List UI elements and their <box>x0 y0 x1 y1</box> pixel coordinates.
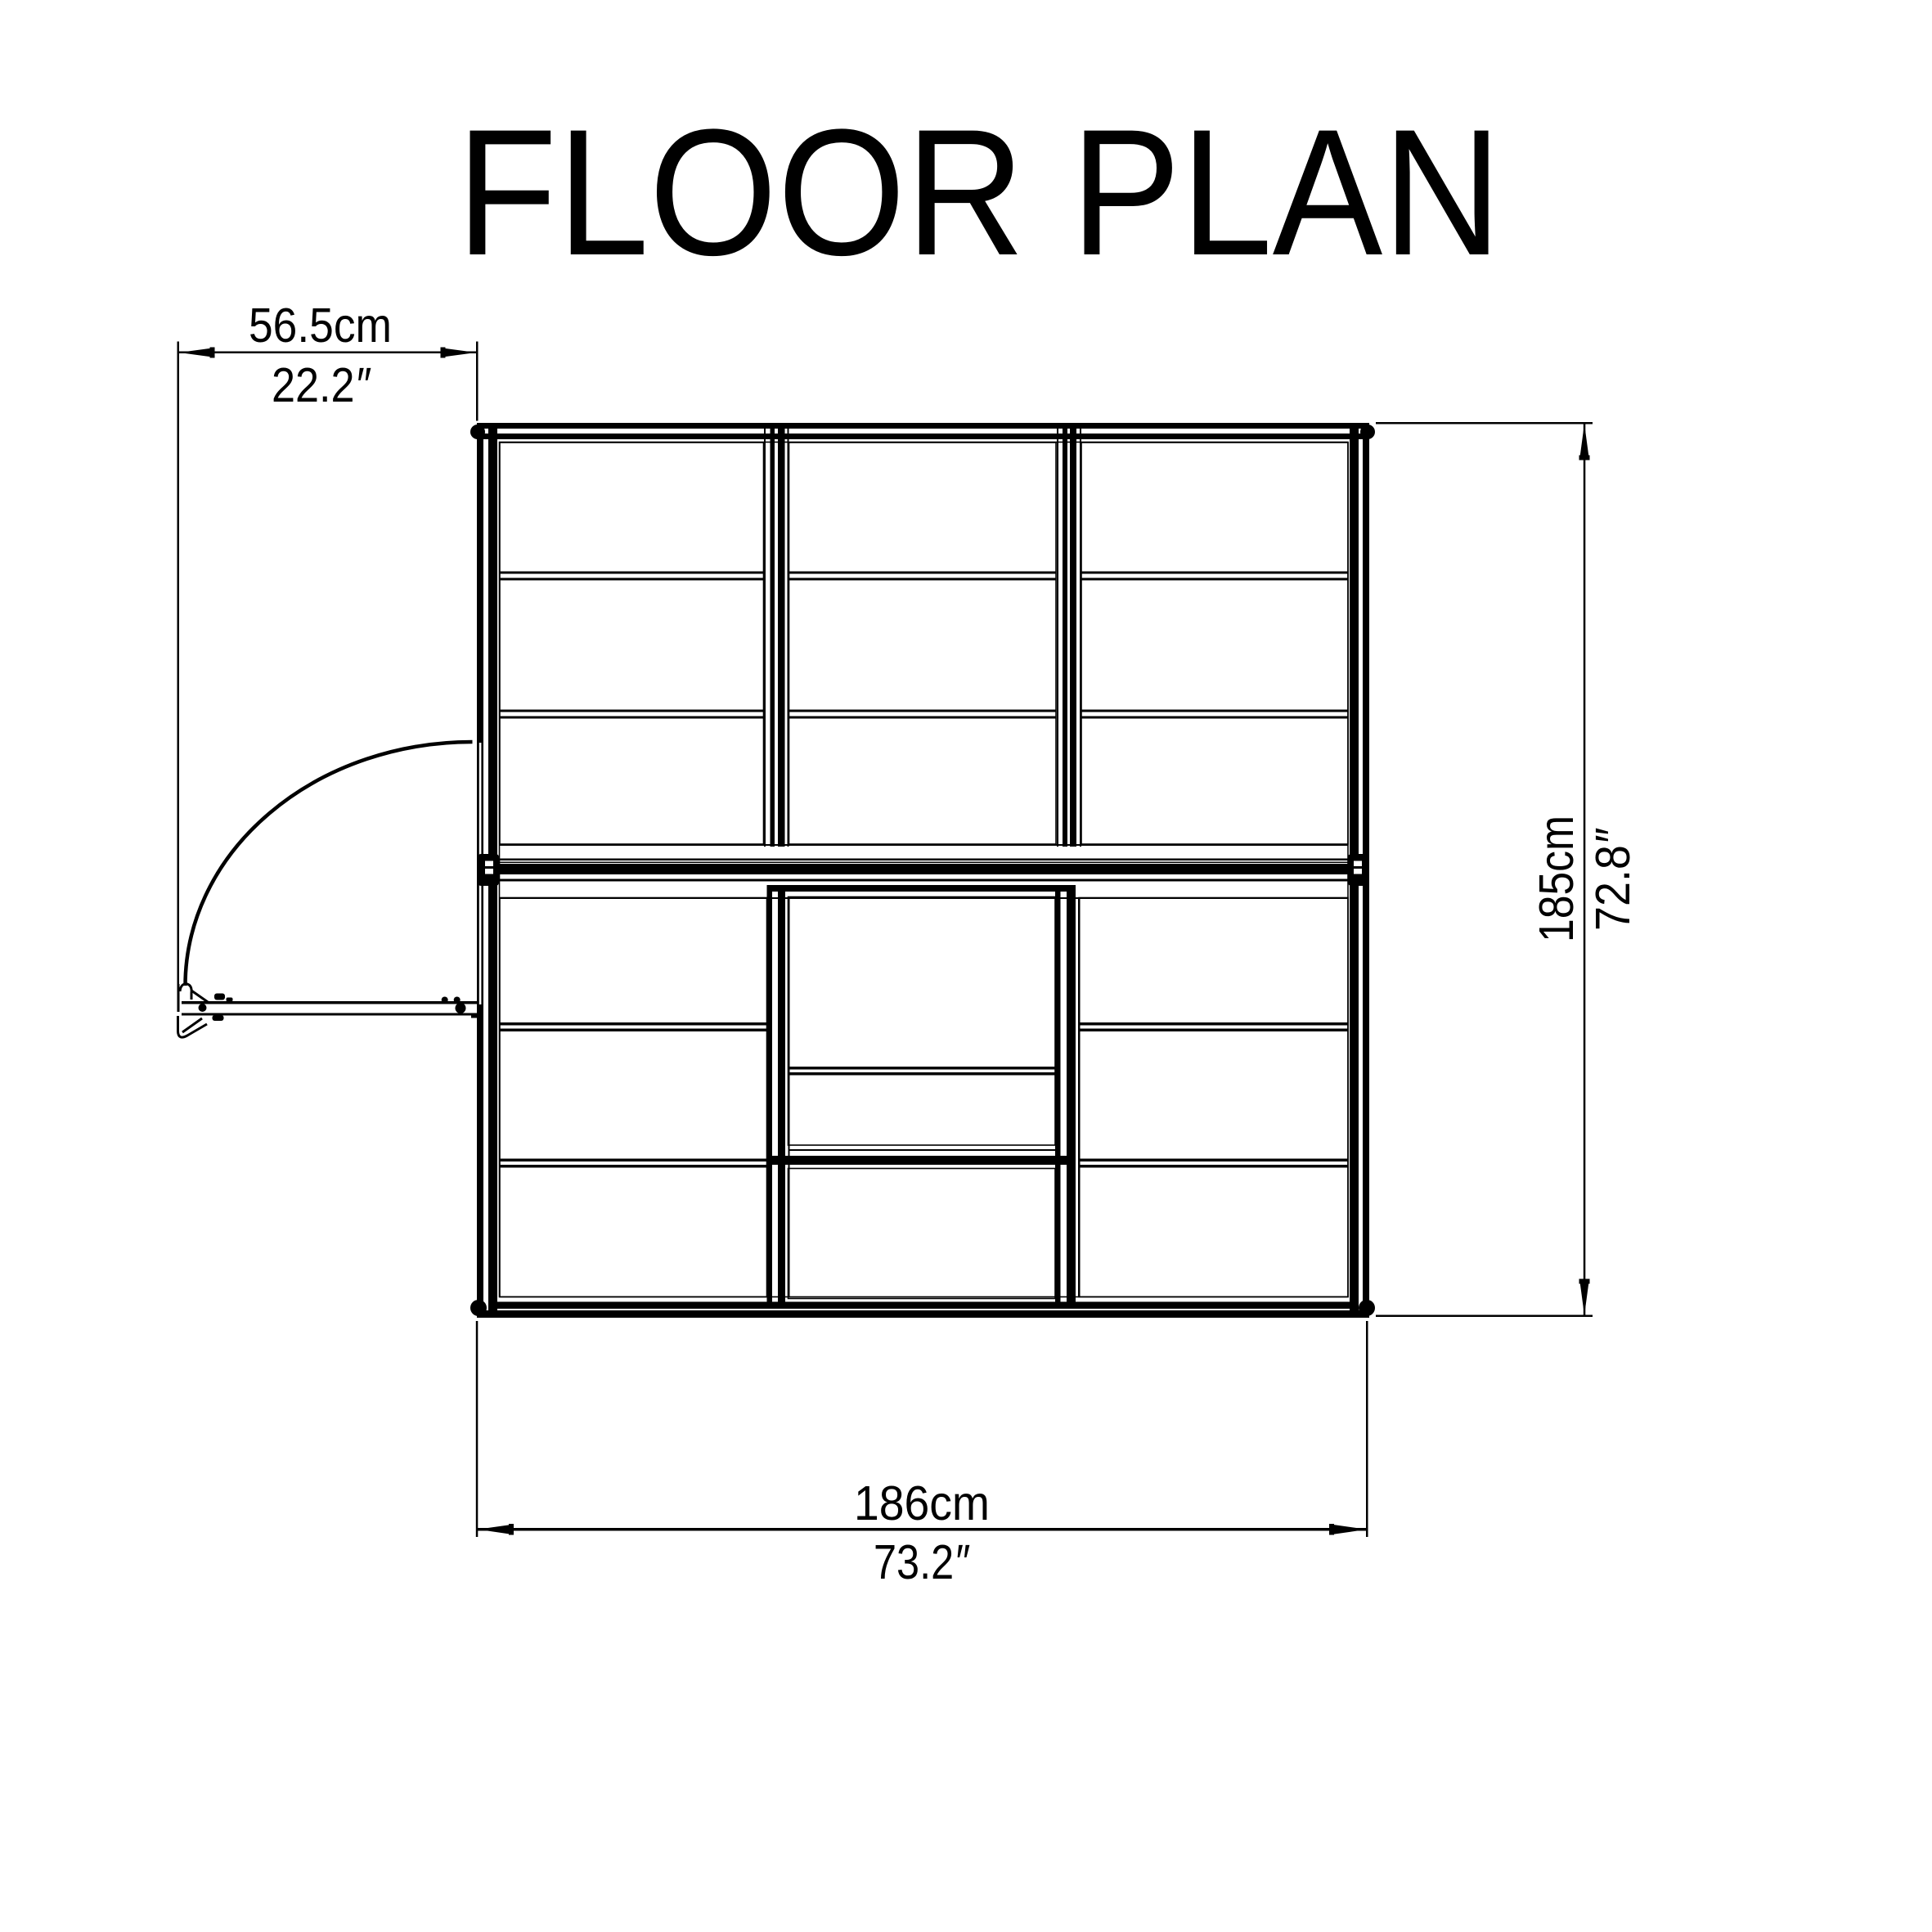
svg-text:185cm: 185cm <box>1530 815 1584 942</box>
svg-text:73.2″: 73.2″ <box>874 1535 970 1589</box>
svg-text:186cm: 186cm <box>854 1476 990 1530</box>
svg-text:72.8″: 72.8″ <box>1586 828 1640 931</box>
svg-text:56.5cm: 56.5cm <box>249 299 392 353</box>
svg-text:FLOOR PLAN: FLOOR PLAN <box>456 92 1502 293</box>
svg-text:22.2″: 22.2″ <box>272 358 371 412</box>
